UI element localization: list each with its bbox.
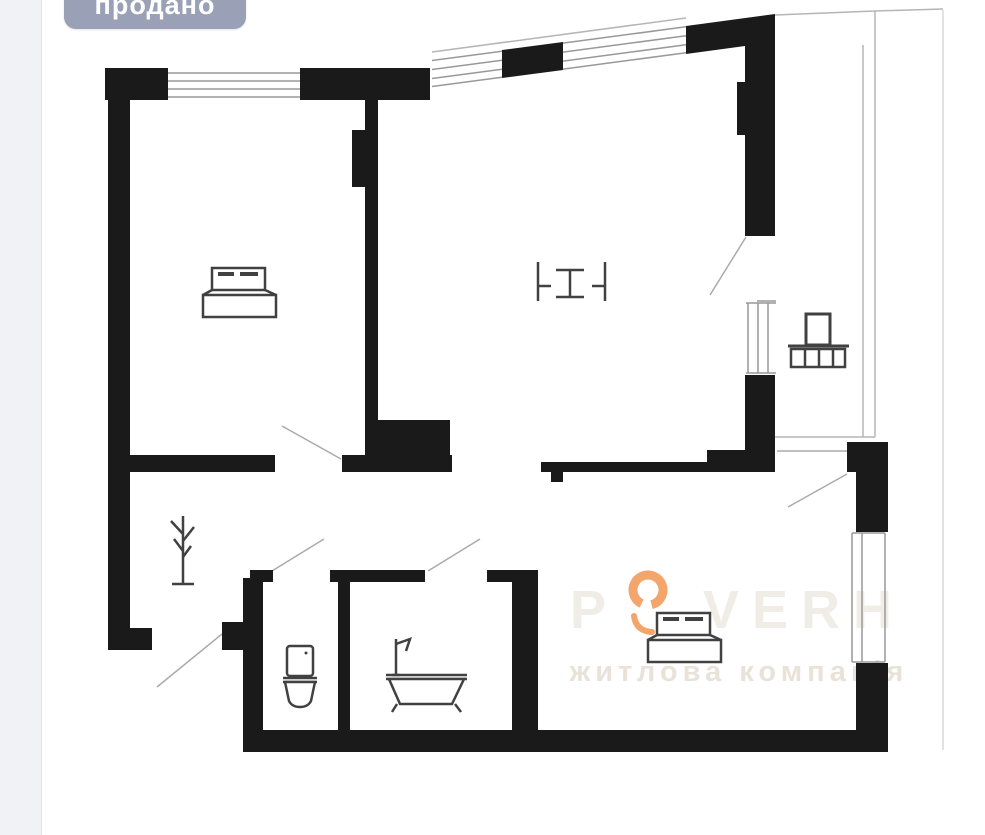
door-entrance xyxy=(157,634,222,687)
window-slanted-left xyxy=(432,51,502,86)
bathtub-icon xyxy=(386,639,467,712)
door-wc xyxy=(272,539,324,571)
bed-icon xyxy=(203,268,276,317)
sold-badge: продано xyxy=(64,0,246,29)
page-left-margin xyxy=(0,0,42,835)
walls xyxy=(105,14,888,752)
toilet-icon xyxy=(283,646,317,707)
sold-badge-label: продано xyxy=(95,0,216,21)
door-bedroom2 xyxy=(788,474,847,507)
window-top-left xyxy=(168,73,300,97)
planter-icon xyxy=(788,314,849,367)
window-slanted-right xyxy=(563,27,686,69)
floor-plan: P VERH житлова компанія xyxy=(0,0,985,835)
coat-rack-icon xyxy=(171,516,194,584)
watermark-letter-p: P xyxy=(570,580,606,640)
listing-page: P VERH житлова компанія xyxy=(0,0,985,835)
door-balcony xyxy=(710,237,746,295)
door-bathroom xyxy=(428,539,480,571)
watermark-letters-verh: VERH xyxy=(703,580,905,640)
dining-table-icon xyxy=(538,262,605,301)
window-living-right xyxy=(746,301,776,373)
door-bedroom1 xyxy=(282,426,341,459)
